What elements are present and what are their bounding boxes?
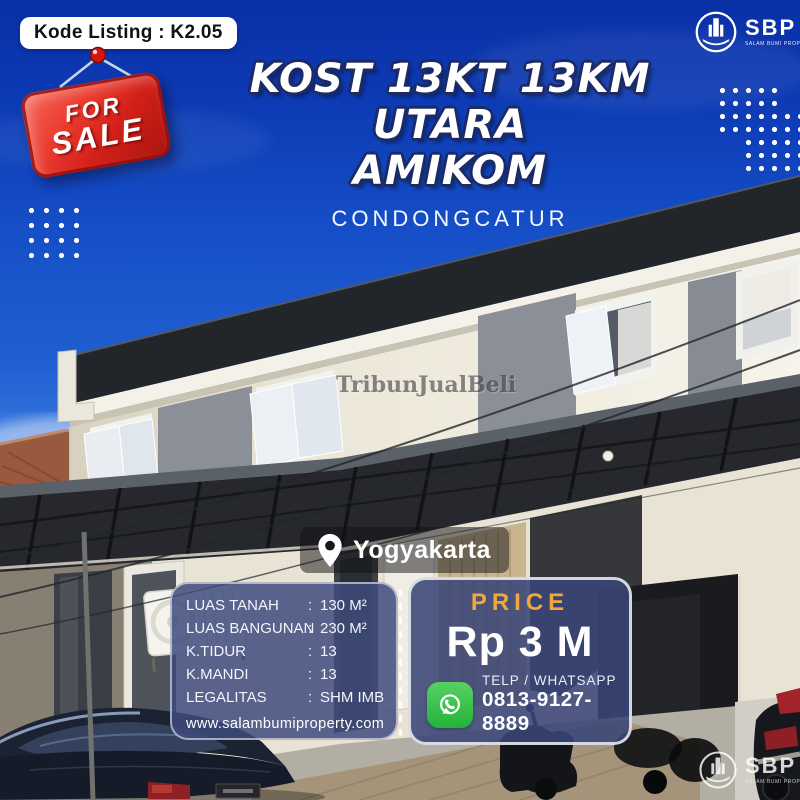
dashed-divider: [399, 589, 402, 736]
detail-label: K.MANDI: [186, 663, 308, 686]
detail-row: K.TIDUR : 13: [186, 640, 384, 663]
detail-value: 130 M²: [320, 594, 384, 617]
title-line2: AMIKOM: [170, 148, 730, 194]
listing-flyer: TribunJualBeli Kode Listing : K2.05 FOR …: [0, 0, 800, 800]
brand-tagline: SALAM BUMI PROPERTY: [745, 41, 800, 47]
dot-grid-top-right: [742, 136, 800, 176]
location-city: Yogyakarta: [353, 536, 491, 565]
detail-value: 230 M²: [320, 617, 384, 640]
for-sale-sign: FOR SALE: [18, 40, 198, 185]
detail-label: LEGALITAS: [186, 686, 308, 709]
brand-tagline: SALAM BUMI PROPERTY: [745, 779, 800, 785]
title-line1: KOST 13KT 13KM UTARA: [170, 56, 730, 148]
detail-separator: :: [308, 663, 320, 686]
map-pin-icon: [318, 534, 342, 567]
detail-label: K.TIDUR: [186, 640, 308, 663]
detail-row: K.MANDI : 13: [186, 663, 384, 686]
detail-label: LUAS BANGUNAN: [186, 617, 308, 640]
brand-name: SBP: [745, 755, 800, 777]
details-panel: LUAS TANAH : 130 M² LUAS BANGUNAN : 230 …: [170, 582, 398, 740]
brand-name: SBP: [745, 17, 800, 39]
detail-separator: :: [308, 686, 320, 709]
whatsapp-icon: [427, 682, 473, 728]
price-value: Rp 3 M: [411, 617, 629, 667]
website-text: www.salambumiproperty.com: [186, 716, 384, 732]
brand-logo-bottom: SBP SALAM BUMI PROPERTY: [698, 750, 800, 790]
detail-label: LUAS TANAH: [186, 594, 308, 617]
location-pill: Yogyakarta: [300, 527, 509, 573]
sbp-emblem-icon: [694, 10, 738, 54]
dot-grid-left: [24, 203, 84, 263]
listing-title: KOST 13KT 13KM UTARA AMIKOM CONDONGCATUR: [170, 56, 730, 232]
detail-row: LUAS BANGUNAN : 230 M²: [186, 617, 384, 640]
price-label: PRICE: [411, 589, 629, 617]
title-subtitle: CONDONGCATUR: [170, 206, 730, 232]
contact-label: TELP / WHATSAPP: [482, 673, 629, 688]
detail-value: 13: [320, 640, 384, 663]
detail-value: 13: [320, 663, 384, 686]
detail-value: SHM IMB: [320, 686, 384, 709]
detail-separator: :: [308, 640, 320, 663]
contact-phone: 0813-9127-8889: [482, 688, 629, 736]
sale-sign-line2: SALE: [49, 113, 148, 161]
detail-separator: :: [308, 617, 320, 640]
sbp-emblem-icon: [698, 750, 738, 790]
photo-watermark: TribunJualBeli: [336, 372, 516, 398]
detail-separator: :: [308, 594, 320, 617]
detail-row: LEGALITAS : SHM IMB: [186, 686, 384, 709]
contact-block: TELP / WHATSAPP 0813-9127-8889: [411, 667, 629, 736]
brand-logo-top: SBP SALAM BUMI PROPERTY: [694, 10, 800, 54]
detail-row: LUAS TANAH : 130 M²: [186, 594, 384, 617]
price-panel: PRICE Rp 3 M TELP / WHATSAPP 0813-9127-8…: [408, 577, 632, 745]
